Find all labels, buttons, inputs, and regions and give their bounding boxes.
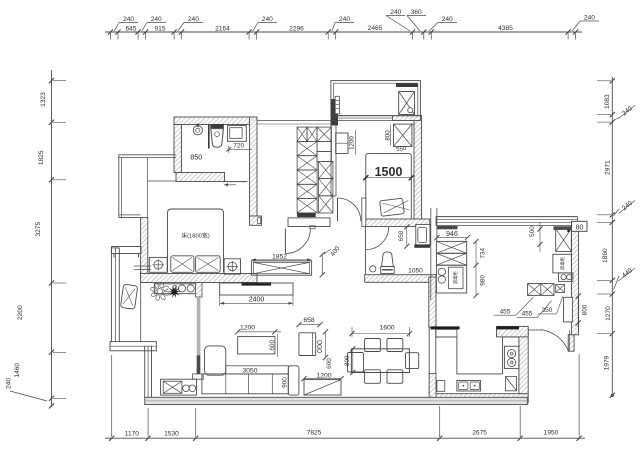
svg-text:1200: 1200 <box>316 372 331 379</box>
svg-text:1083: 1083 <box>604 94 611 109</box>
svg-text:2296: 2296 <box>289 26 304 33</box>
svg-text:240: 240 <box>123 16 134 23</box>
svg-text:600: 600 <box>326 358 333 369</box>
svg-text:658: 658 <box>303 317 315 324</box>
svg-text:1170: 1170 <box>125 430 140 437</box>
svg-text:1500: 1500 <box>375 165 403 179</box>
svg-text:3275: 3275 <box>35 222 42 237</box>
svg-text:2200: 2200 <box>17 305 24 320</box>
svg-text:1600: 1600 <box>379 325 394 332</box>
svg-text:1460: 1460 <box>14 363 21 378</box>
svg-text:915: 915 <box>154 26 165 33</box>
svg-text:850: 850 <box>190 152 202 161</box>
svg-text:1979: 1979 <box>604 355 611 370</box>
svg-text:240: 240 <box>151 16 162 23</box>
svg-text:1323: 1323 <box>40 92 47 107</box>
svg-text:3050: 3050 <box>242 367 257 374</box>
svg-text:2675: 2675 <box>472 430 487 437</box>
svg-text:80: 80 <box>576 224 584 231</box>
svg-text:7825: 7825 <box>307 430 322 437</box>
svg-text:240: 240 <box>6 378 13 389</box>
svg-text:1950: 1950 <box>544 430 559 437</box>
svg-text:240: 240 <box>442 16 453 23</box>
svg-text:455: 455 <box>522 311 533 318</box>
svg-text:床(1800宽): 床(1800宽) <box>181 232 209 240</box>
svg-text:240: 240 <box>188 16 199 23</box>
svg-text:1530: 1530 <box>164 430 179 437</box>
svg-text:980: 980 <box>479 275 486 286</box>
svg-text:1050: 1050 <box>408 268 423 275</box>
svg-text:800: 800 <box>344 355 351 366</box>
svg-text:900: 900 <box>282 377 289 388</box>
svg-text:645: 645 <box>125 26 136 33</box>
svg-text:消毒柜: 消毒柜 <box>559 256 566 270</box>
svg-text:消毒柜: 消毒柜 <box>452 271 459 285</box>
svg-text:650: 650 <box>398 230 405 241</box>
svg-text:1825: 1825 <box>38 150 45 165</box>
svg-text:2971: 2971 <box>605 160 612 175</box>
svg-text:720: 720 <box>233 143 244 150</box>
svg-text:240: 240 <box>390 9 401 16</box>
svg-text:800: 800 <box>582 304 589 315</box>
svg-text:2400: 2400 <box>249 297 265 304</box>
svg-text:240: 240 <box>339 16 350 23</box>
svg-text:500: 500 <box>529 226 536 237</box>
svg-text:1200: 1200 <box>240 325 255 332</box>
svg-text:946: 946 <box>446 231 458 238</box>
svg-text:240: 240 <box>584 15 595 22</box>
svg-text:240: 240 <box>262 16 273 23</box>
svg-text:734: 734 <box>479 248 486 259</box>
svg-text:2465: 2465 <box>368 25 383 32</box>
svg-text:600: 600 <box>269 340 276 351</box>
svg-text:2164: 2164 <box>215 26 230 33</box>
svg-text:455: 455 <box>500 308 511 315</box>
svg-text:1270: 1270 <box>605 306 612 321</box>
svg-text:1860: 1860 <box>602 248 609 263</box>
svg-text:1200: 1200 <box>349 136 356 150</box>
svg-text:4385: 4385 <box>498 25 513 32</box>
svg-text:360: 360 <box>411 9 422 16</box>
